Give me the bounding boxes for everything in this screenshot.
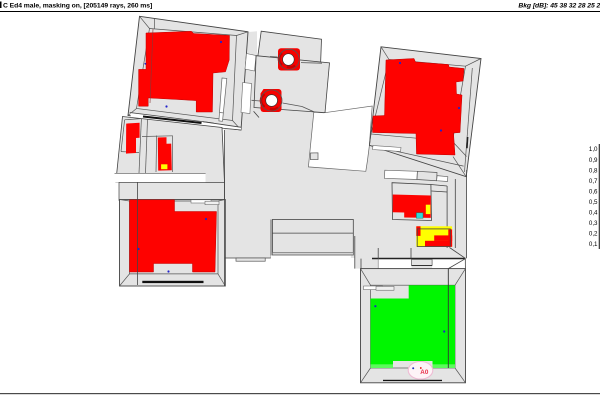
svg-text:0,6: 0,6 — [589, 188, 598, 195]
svg-text:1,0: 1,0 — [589, 146, 598, 153]
svg-text:0,8: 0,8 — [589, 167, 598, 174]
svg-text:0,4: 0,4 — [589, 210, 598, 217]
svg-text:0,1: 0,1 — [589, 241, 598, 248]
svg-text:A0: A0 — [420, 369, 429, 376]
svg-text:0,7: 0,7 — [589, 178, 598, 185]
svg-text:0,5: 0,5 — [589, 199, 598, 206]
svg-text:0,2: 0,2 — [589, 231, 598, 238]
svg-text:C Ed4 male, masking on, [2051: C Ed4 male, masking on, [205149 rays, 26… — [3, 3, 152, 10]
svg-text:0,3: 0,3 — [589, 220, 598, 227]
svg-text:0,9: 0,9 — [589, 157, 598, 164]
svg-text:Bkg [dB]: 45 38 32 28 25 22: Bkg [dB]: 45 38 32 28 25 22 — [518, 3, 600, 10]
